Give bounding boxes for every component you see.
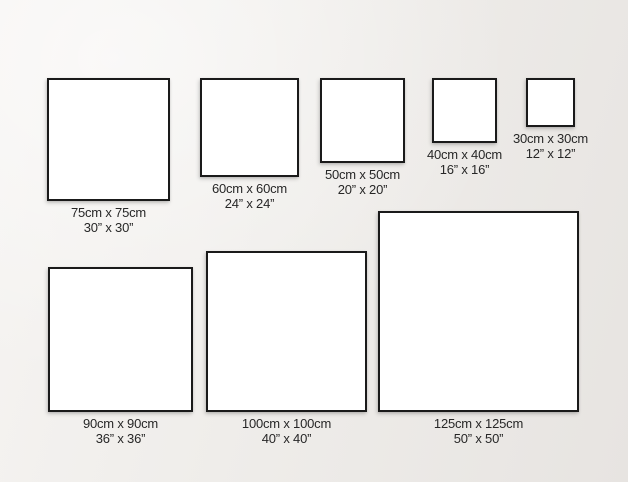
size-label-75x75-cm: 75cm x 75cm bbox=[71, 205, 146, 220]
size-label-40x40-inches: 16” x 16” bbox=[427, 162, 502, 177]
size-item-50x50: 50cm x 50cm 20” x 20” bbox=[320, 78, 405, 163]
size-item-30x30: 30cm x 30cm 12” x 12” bbox=[526, 78, 575, 127]
canvas-square-40x40 bbox=[432, 78, 497, 143]
size-label-50x50: 50cm x 50cm 20” x 20” bbox=[325, 167, 400, 197]
size-label-60x60-cm: 60cm x 60cm bbox=[212, 181, 287, 196]
size-label-60x60: 60cm x 60cm 24” x 24” bbox=[212, 181, 287, 211]
size-label-75x75: 75cm x 75cm 30” x 30” bbox=[71, 205, 146, 235]
size-label-40x40: 40cm x 40cm 16” x 16” bbox=[427, 147, 502, 177]
size-label-90x90-inches: 36” x 36” bbox=[83, 431, 158, 446]
size-item-40x40: 40cm x 40cm 16” x 16” bbox=[432, 78, 497, 143]
size-item-60x60: 60cm x 60cm 24” x 24” bbox=[200, 78, 299, 177]
size-label-30x30-cm: 30cm x 30cm bbox=[513, 131, 588, 146]
size-guide-canvas: 75cm x 75cm 30” x 30” 60cm x 60cm 24” x … bbox=[0, 0, 628, 482]
size-label-125x125: 125cm x 125cm 50” x 50” bbox=[434, 416, 523, 446]
size-item-125x125: 125cm x 125cm 50” x 50” bbox=[378, 211, 579, 412]
size-label-30x30-inches: 12” x 12” bbox=[513, 146, 588, 161]
size-label-30x30: 30cm x 30cm 12” x 12” bbox=[513, 131, 588, 161]
size-label-90x90: 90cm x 90cm 36” x 36” bbox=[83, 416, 158, 446]
size-label-100x100-cm: 100cm x 100cm bbox=[242, 416, 331, 431]
size-label-125x125-inches: 50” x 50” bbox=[434, 431, 523, 446]
canvas-square-60x60 bbox=[200, 78, 299, 177]
canvas-square-100x100 bbox=[206, 251, 367, 412]
canvas-square-30x30 bbox=[526, 78, 575, 127]
size-label-40x40-cm: 40cm x 40cm bbox=[427, 147, 502, 162]
size-item-100x100: 100cm x 100cm 40” x 40” bbox=[206, 251, 367, 412]
size-item-75x75: 75cm x 75cm 30” x 30” bbox=[47, 78, 170, 201]
size-label-50x50-inches: 20” x 20” bbox=[325, 182, 400, 197]
size-label-50x50-cm: 50cm x 50cm bbox=[325, 167, 400, 182]
size-item-90x90: 90cm x 90cm 36” x 36” bbox=[48, 267, 193, 412]
canvas-square-125x125 bbox=[378, 211, 579, 412]
size-label-125x125-cm: 125cm x 125cm bbox=[434, 416, 523, 431]
size-label-100x100-inches: 40” x 40” bbox=[242, 431, 331, 446]
size-label-75x75-inches: 30” x 30” bbox=[71, 220, 146, 235]
canvas-square-75x75 bbox=[47, 78, 170, 201]
canvas-square-50x50 bbox=[320, 78, 405, 163]
size-label-90x90-cm: 90cm x 90cm bbox=[83, 416, 158, 431]
canvas-square-90x90 bbox=[48, 267, 193, 412]
size-label-100x100: 100cm x 100cm 40” x 40” bbox=[242, 416, 331, 446]
size-label-60x60-inches: 24” x 24” bbox=[212, 196, 287, 211]
